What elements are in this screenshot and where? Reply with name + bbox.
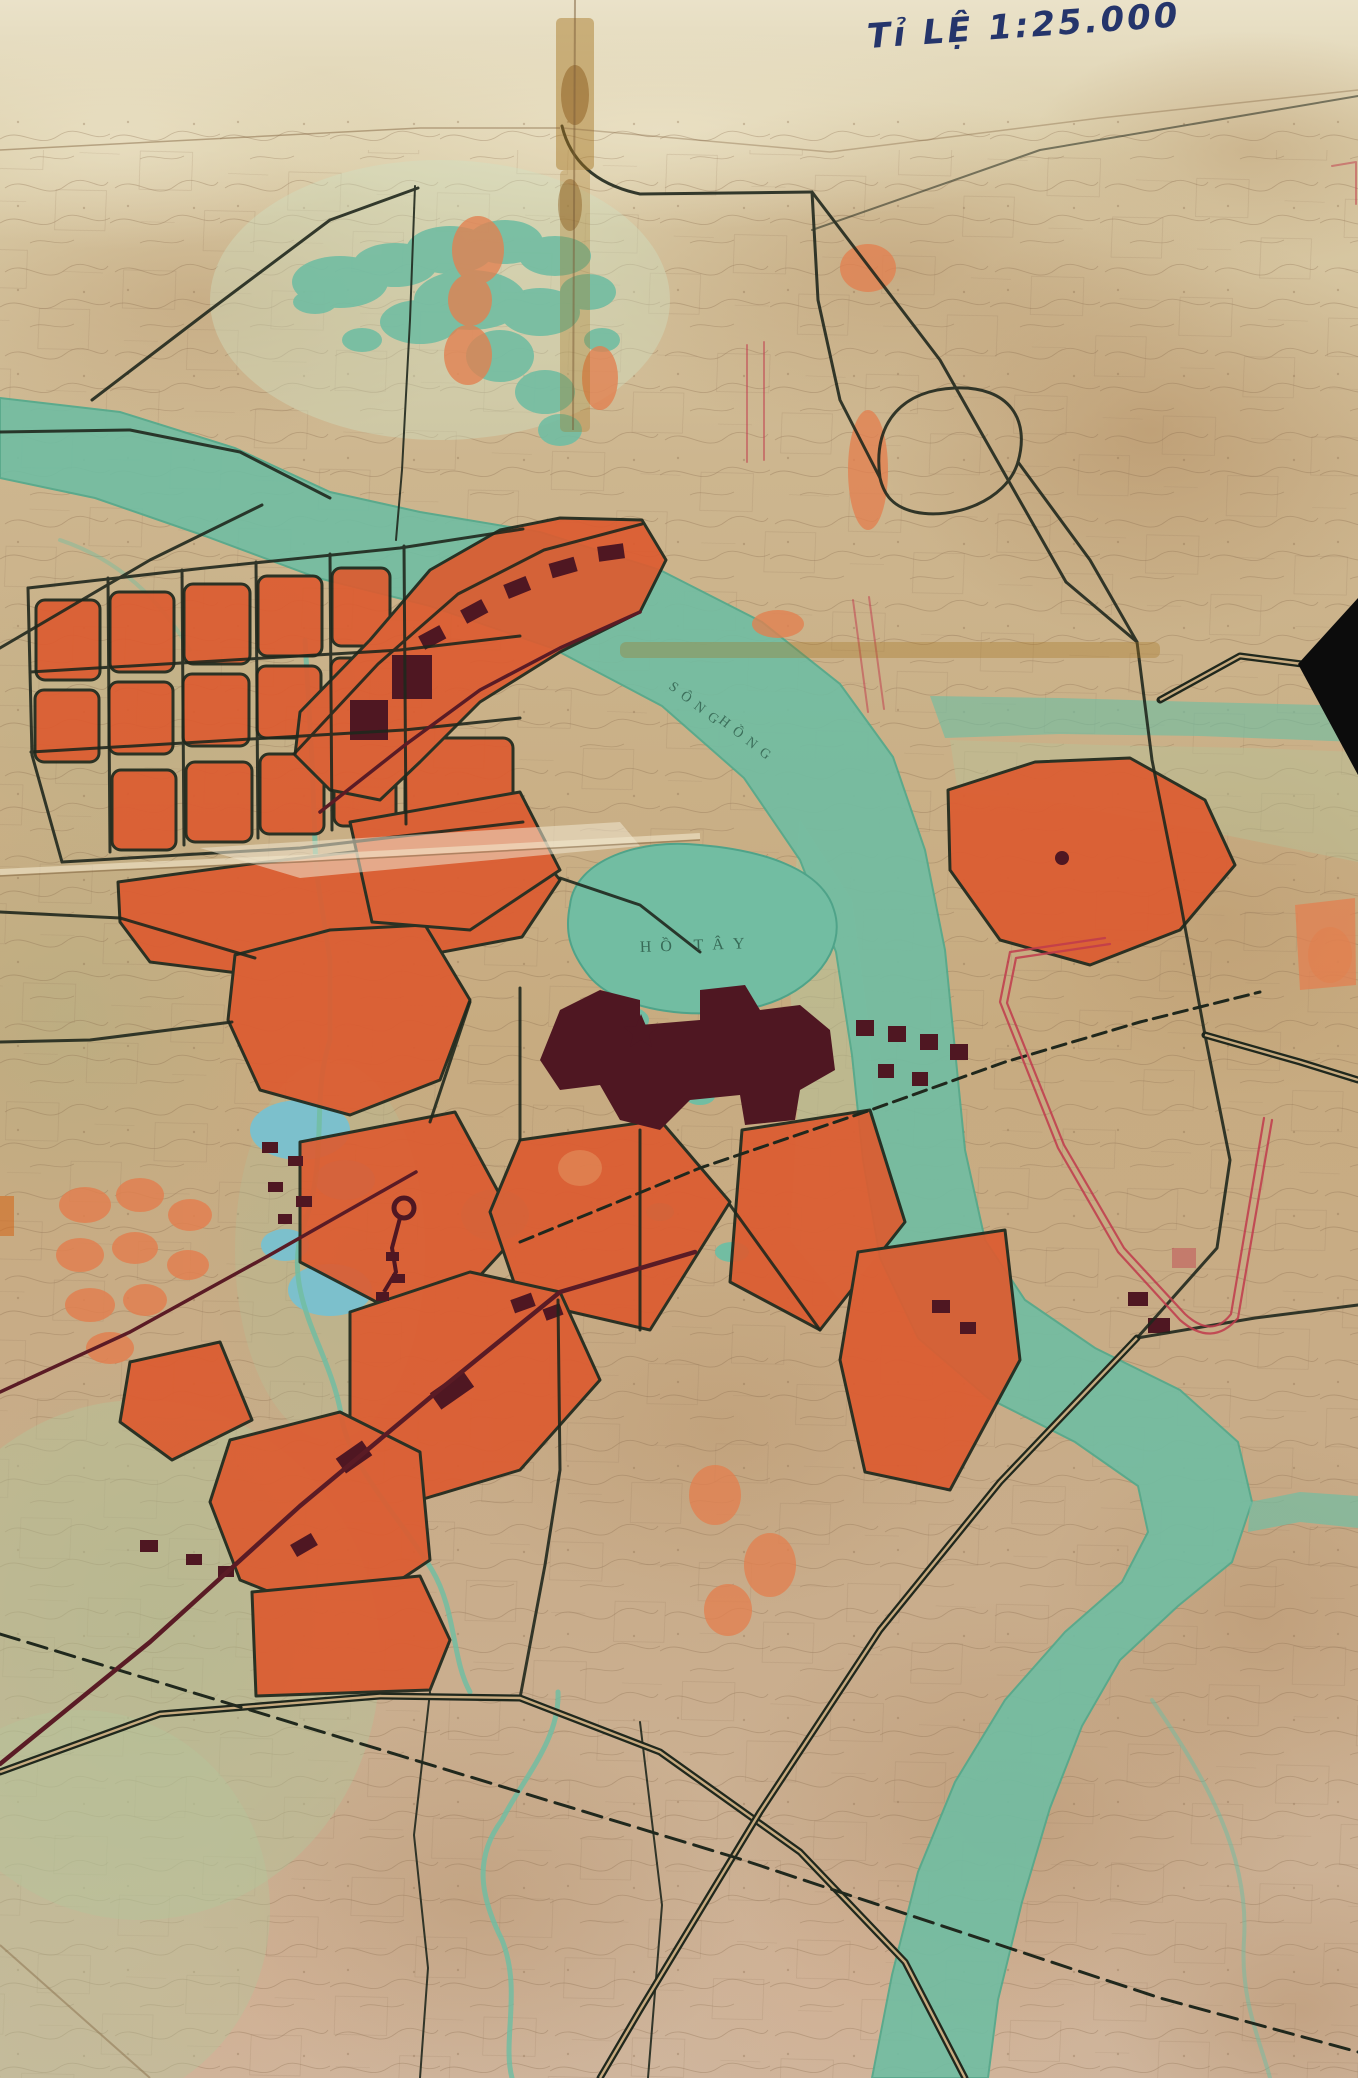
red-patch [1172, 1248, 1196, 1268]
ho-tay-lake [568, 844, 837, 1014]
tape-blob-2 [558, 179, 582, 231]
map-photo: Tỉ LỆ 1:25.000 HỒ TÂY SÔNG HỒNG [0, 0, 1358, 2078]
tape-strip-horizontal [620, 642, 1160, 658]
edge-mark-left [0, 1196, 14, 1236]
planning-map-svg: Tỉ LỆ 1:25.000 HỒ TÂY SÔNG HỒNG [0, 0, 1358, 2078]
zone-sw-3 [252, 1576, 450, 1696]
